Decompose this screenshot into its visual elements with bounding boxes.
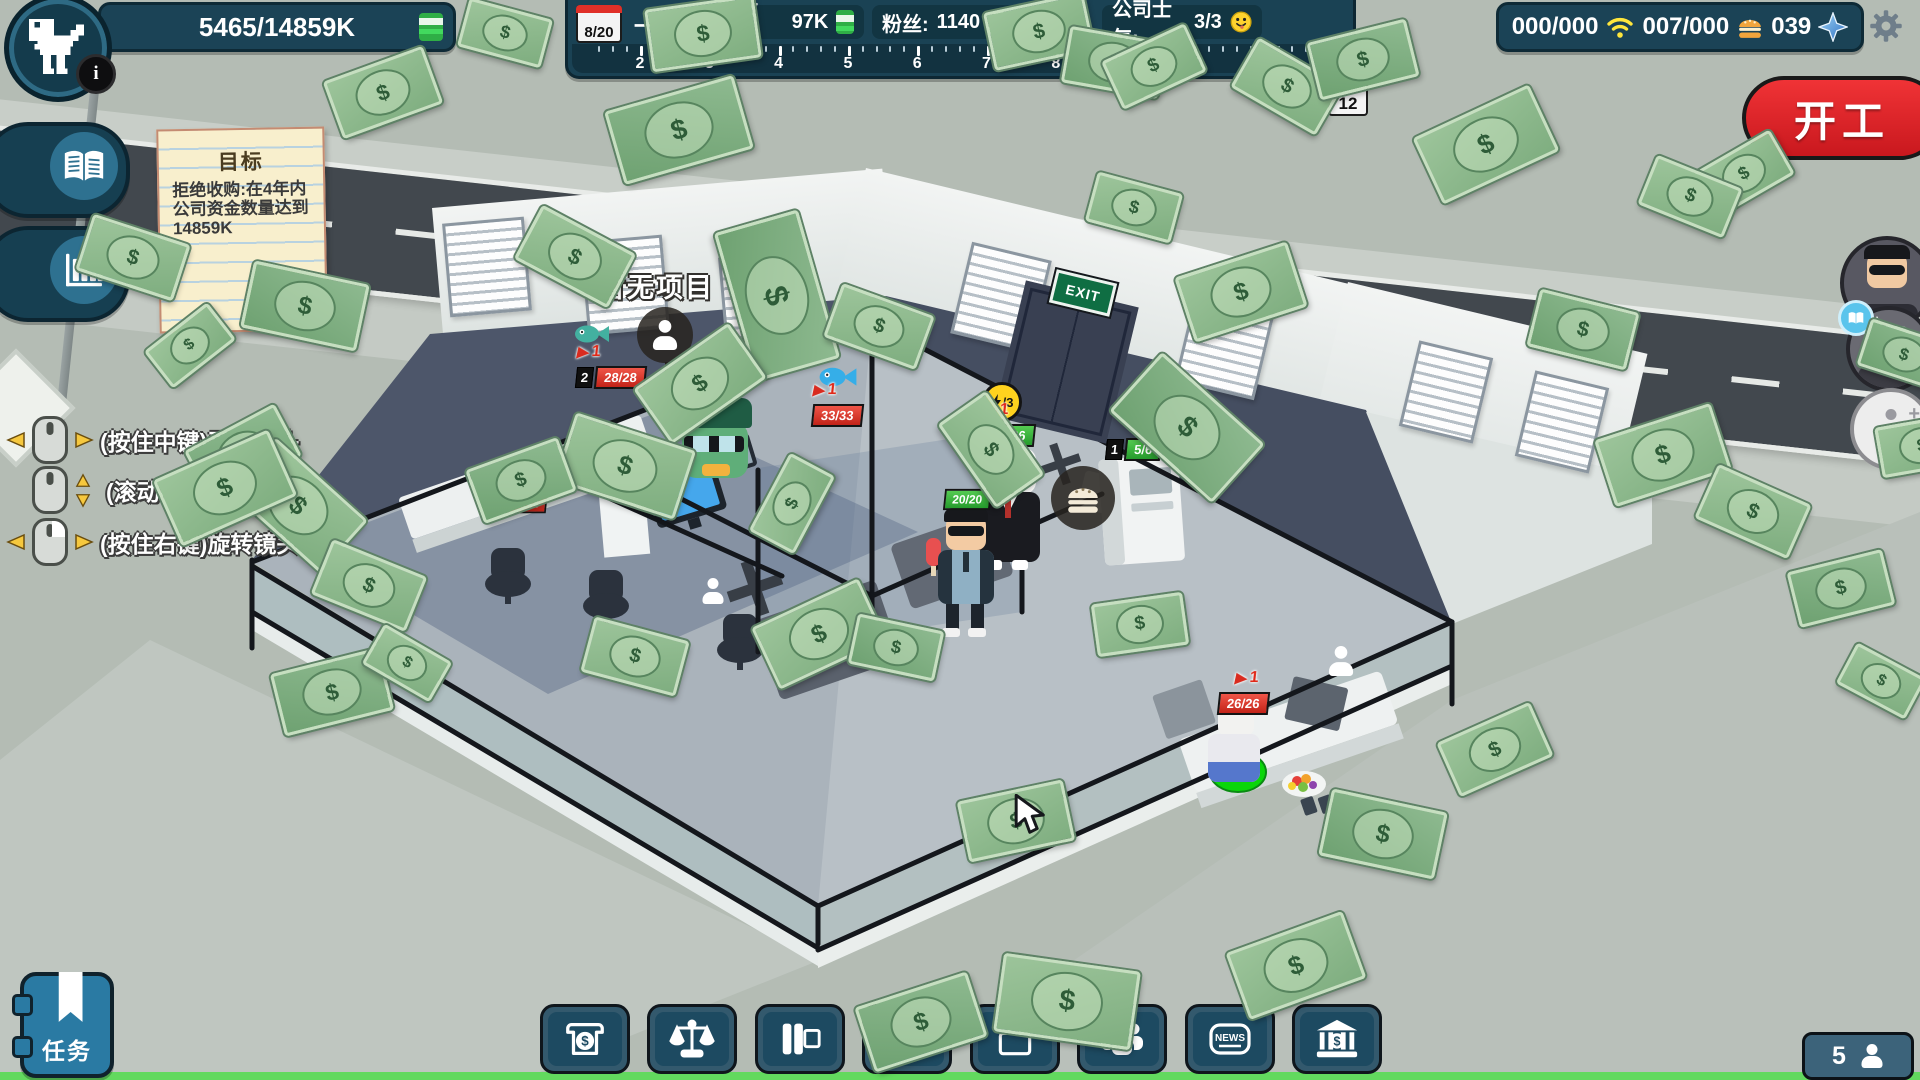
employee-kitchen[interactable]: [1196, 706, 1276, 796]
hammer-icon: [885, 1017, 929, 1061]
employee-man-popsicle[interactable]: [928, 508, 1008, 648]
toolbar-button-storage[interactable]: [970, 1004, 1060, 1074]
ruler-tick: [1319, 46, 1321, 52]
toolbar-button-finance[interactable]: $: [540, 1004, 630, 1074]
person-icon: [1860, 1044, 1884, 1068]
bookmark-ribbon-icon: [59, 972, 83, 1022]
arrow-right-icon: [74, 430, 94, 450]
company-funds-panel[interactable]: 5465/14859K: [98, 2, 456, 52]
month-label: 一月: [634, 7, 680, 41]
timeline-ruler: 23456789101112: [572, 44, 1345, 73]
sidebar-stats-button[interactable]: [0, 226, 130, 322]
ruler-tick: [1305, 46, 1307, 52]
goal-title: 目标: [159, 145, 323, 178]
ruler-tick: [1250, 46, 1252, 52]
ruler-tick: [1111, 46, 1113, 52]
no-project-label: 暂无项目: [598, 266, 714, 305]
ruler-number: 10: [1183, 55, 1205, 73]
mouse-scroll-icon: [32, 466, 68, 514]
ruler-tick: [682, 46, 684, 52]
toolbar-button-projects[interactable]: [755, 1004, 845, 1074]
person-icon: [1874, 409, 1908, 443]
scales-icon: [668, 1017, 716, 1061]
arrow-left-icon: [6, 532, 26, 552]
ruler-tick: [1000, 46, 1002, 52]
food-value: 007/000: [1642, 13, 1729, 41]
arrow-up-icon: [74, 473, 92, 488]
status-badge: 1 26/26: [983, 424, 1036, 447]
ruler-tick: [903, 46, 905, 52]
ruler-number: 7: [976, 55, 998, 73]
calendar-date: 8/20: [576, 5, 622, 43]
ruler-number: 2: [629, 55, 651, 73]
ruler-number: 11: [1253, 55, 1275, 73]
ruler-number: 5: [837, 55, 859, 73]
morale-emoji-icon: [1230, 9, 1252, 35]
ruler-tick: [959, 46, 961, 52]
ruler-tick: [654, 46, 656, 52]
svg-text:$: $: [1334, 1035, 1341, 1049]
ruler-tick: [1042, 46, 1044, 52]
book-icon: [63, 149, 105, 183]
ruler-tick: [1222, 46, 1224, 52]
staff-group-icon: [1098, 1018, 1146, 1060]
ruler-tick: [668, 46, 670, 52]
ruler-number: 8: [1045, 55, 1067, 73]
goal-note: 目标 拒绝收购:在4年内公司资金数量达到14859K: [156, 127, 328, 334]
ruler-tick: [695, 46, 697, 52]
ruler-tick: [1208, 46, 1210, 52]
news-icon: NEWS: [1206, 1018, 1254, 1060]
idle-employee-bubble[interactable]: [637, 307, 693, 363]
fans-person-icon: [988, 10, 1010, 34]
status-badge: 1 5/6: [1105, 438, 1163, 461]
staff-count: 5: [1832, 1042, 1846, 1071]
status-badge: 20/20: [943, 489, 992, 510]
ruler-tick: [945, 46, 947, 52]
ruler-number: 4: [768, 55, 790, 73]
ruler-number: 6: [906, 55, 928, 73]
employee-duck[interactable]: [668, 396, 778, 496]
start-work-button[interactable]: 开工: [1742, 76, 1920, 160]
arrow-left-icon: [6, 430, 26, 450]
bottom-green-strip: [0, 1072, 1920, 1080]
person-marker-icon: [1327, 646, 1357, 676]
toolbar-button-legal[interactable]: [647, 1004, 737, 1074]
cash-icon: [419, 13, 443, 41]
ruler-tick: [765, 46, 767, 52]
toolbar-button-bank[interactable]: $: [1292, 1004, 1382, 1074]
briefcase-icon: [993, 1018, 1037, 1060]
toolbar-button-staff[interactable]: [1077, 1004, 1167, 1074]
goal-text: 拒绝收购:在4年内公司资金数量达到14859K: [159, 175, 324, 239]
staff-count-panel[interactable]: 5: [1802, 1032, 1914, 1080]
person-marker-icon: [700, 578, 726, 604]
ruler-tick: [973, 46, 975, 52]
ruler-tick: [1167, 46, 1169, 52]
settings-button[interactable]: [1862, 2, 1910, 50]
arrow-right-icon: [74, 532, 94, 552]
gems-value: 039: [1771, 13, 1811, 41]
mouse-middle-icon: [32, 416, 68, 464]
mouse-cursor: [1012, 794, 1050, 836]
diamond-icon: [1818, 12, 1848, 42]
ruler-tick: [751, 46, 753, 52]
plus-icon: +: [1908, 403, 1920, 426]
ruler-tick: [598, 46, 600, 52]
ruler-tick: [612, 46, 614, 52]
ruler-tick: [862, 46, 864, 52]
gear-icon: [1868, 4, 1904, 48]
cash-icon: [836, 10, 854, 34]
hint-pan-camera: (按住中键)平移镜头: [6, 416, 299, 464]
hint-rotate-camera: (按住右键)旋转镜头: [6, 518, 299, 566]
ruler-tick: [1084, 46, 1086, 52]
bank-icon: $: [1314, 1017, 1360, 1061]
month-end-marker: 12: [1328, 74, 1368, 116]
tax-section: 已缴税:97K: [708, 5, 864, 39]
resources-panel: 000/000 007/000 039: [1496, 2, 1864, 52]
ruler-tick: [1291, 46, 1293, 52]
ruler-tick: [792, 46, 794, 52]
info-badge[interactable]: i: [76, 54, 116, 94]
ruler-tick: [889, 46, 891, 52]
ruler-tick: [626, 46, 628, 52]
portrait-book-badge: [1838, 300, 1874, 336]
ruler-tick: [1070, 46, 1072, 52]
ruler-tick: [1153, 46, 1155, 52]
svg-text:$: $: [581, 1034, 589, 1049]
burger-icon: [1064, 482, 1102, 514]
ruler-number: 3: [698, 55, 720, 73]
goal-checkbox[interactable]: [285, 289, 313, 317]
ruler-number: 12: [1322, 55, 1344, 73]
game-root: EXIT 暂无项目 /3: [0, 0, 1920, 1080]
ruler-tick: [723, 46, 725, 52]
window-blinds: [718, 251, 808, 352]
hungry-burger-bubble[interactable]: [1051, 466, 1115, 530]
arrow-down-icon: [74, 493, 92, 508]
ruler-tick: [1139, 46, 1141, 52]
bandwidth-value: 000/000: [1512, 13, 1599, 41]
toolbar-button-news[interactable]: NEWS: [1185, 1004, 1275, 1074]
hint-zoom-camera: (滚动中键)缩放镜头: [32, 466, 305, 514]
burger-icon: [1736, 14, 1764, 40]
task-button[interactable]: 任务: [20, 972, 114, 1078]
ruler-tick: [806, 46, 808, 52]
bar-chart-icon: [64, 252, 104, 288]
top-status-panel: 8/20 一月 已缴税:97K 粉丝:1140 公司士气:3/3 2345678…: [565, 0, 1356, 79]
ruler-tick: [1181, 46, 1183, 52]
ruler-tick: [1028, 46, 1030, 52]
ruler-tick: [1097, 46, 1099, 52]
ruler-tick: [1236, 46, 1238, 52]
status-badge: 2 24/24: [486, 494, 547, 514]
ruler-tick: [1278, 46, 1280, 52]
status-badge: 1 33/33: [811, 404, 864, 427]
ruler-number: 9: [1114, 55, 1136, 73]
wifi-icon: [1605, 14, 1635, 40]
ruler-tick: [737, 46, 739, 52]
morale-section: 公司士气:3/3: [1102, 5, 1262, 39]
mouse-right-icon: [32, 518, 68, 566]
toolbar-button-build[interactable]: [862, 1004, 952, 1074]
cash-receipt-icon: $: [562, 1016, 608, 1062]
project-cards-icon: [777, 1017, 823, 1061]
fans-section: 粉丝:1140: [872, 5, 1044, 39]
person-icon: [650, 320, 680, 350]
ruler-tick: [876, 46, 878, 52]
ruler-tick: [820, 46, 822, 52]
ruler-tick: [834, 46, 836, 52]
funds-value: 5465/14859K: [199, 12, 355, 43]
status-badge: 1 26/26: [1217, 692, 1270, 715]
status-badge: 1 2 28/28: [575, 366, 647, 389]
ruler-tick: [931, 46, 933, 52]
window-blinds: [442, 217, 532, 318]
ruler-tick: [1014, 46, 1016, 52]
book-icon: [1848, 311, 1864, 325]
svg-text:NEWS: NEWS: [1215, 1033, 1245, 1044]
sidebar-handbook-button[interactable]: [0, 122, 130, 218]
